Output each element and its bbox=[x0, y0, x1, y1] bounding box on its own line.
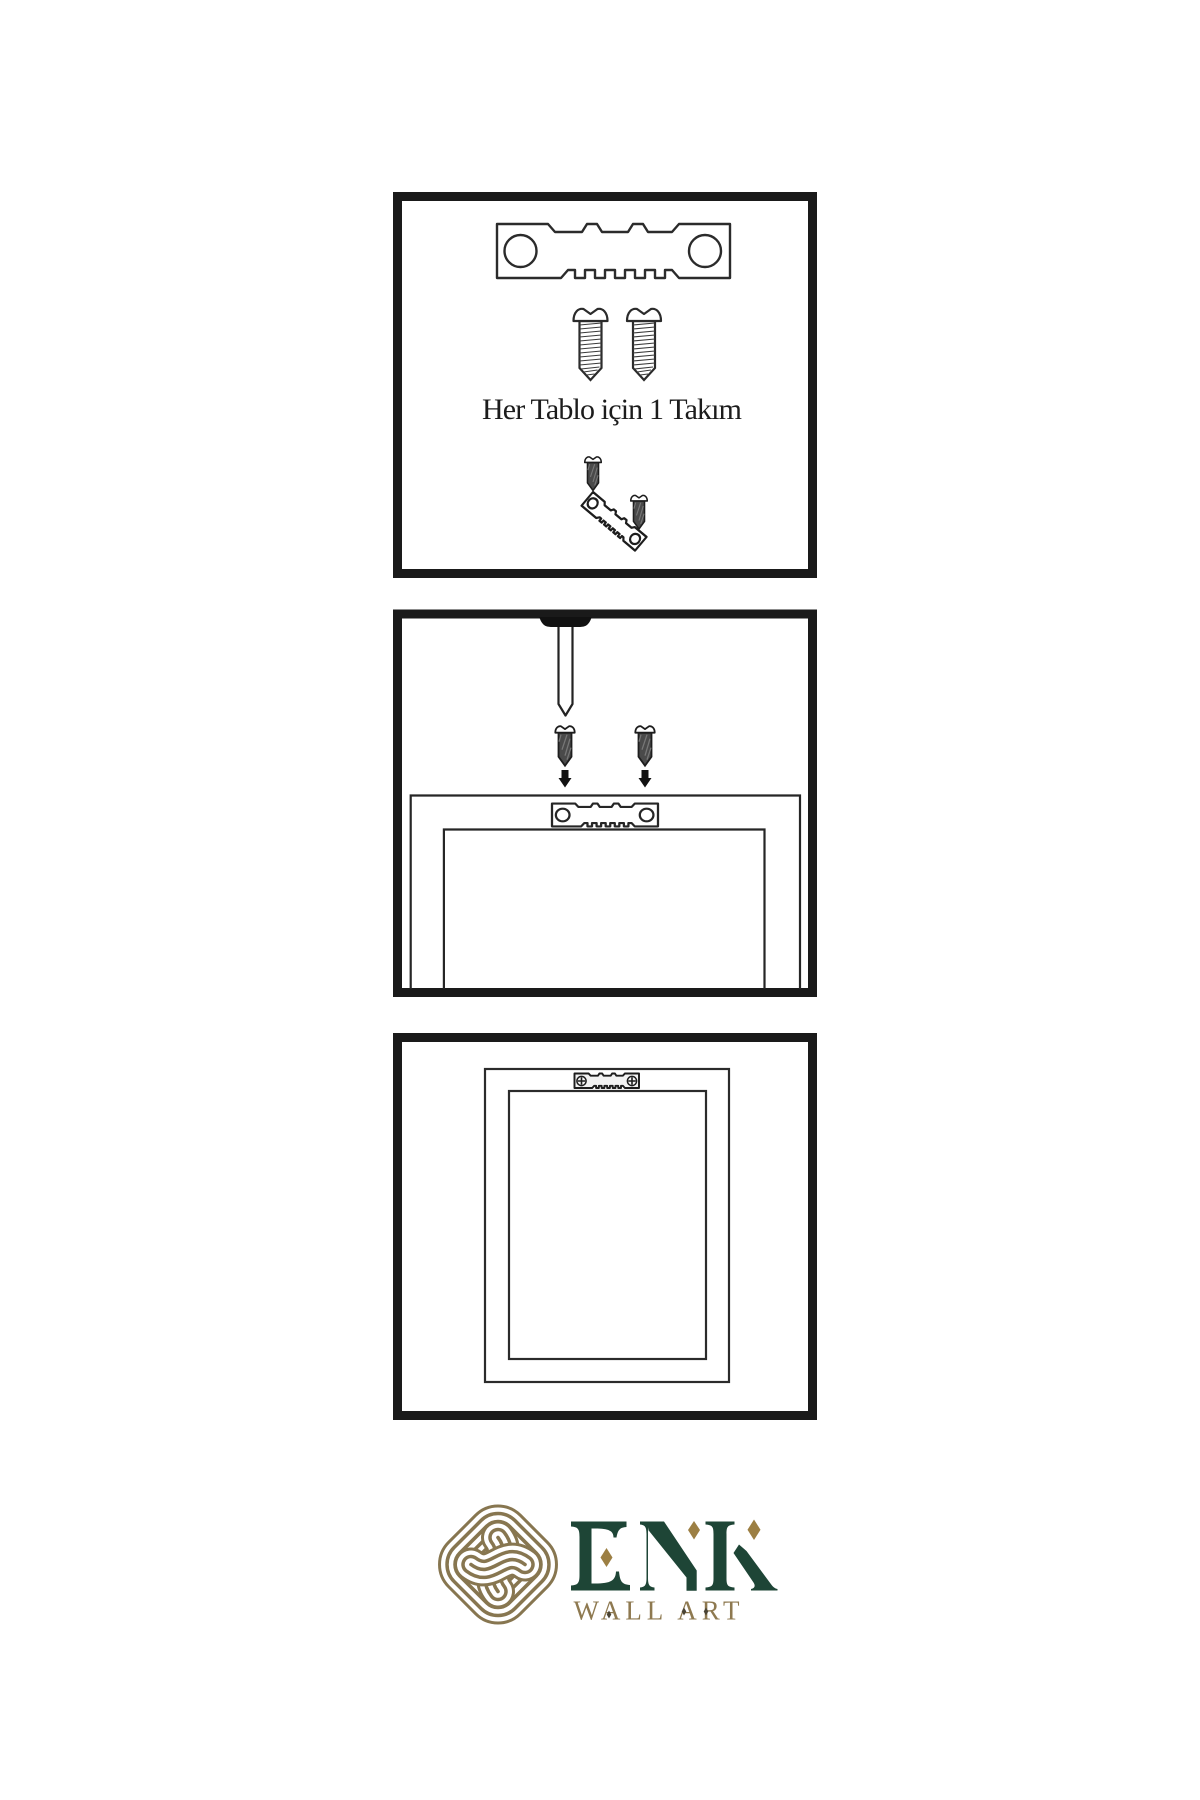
svg-text:WALL ART: WALL ART bbox=[574, 1596, 745, 1626]
svg-text:Her Tablo için 1 Takım: Her Tablo için 1 Takım bbox=[482, 393, 742, 426]
